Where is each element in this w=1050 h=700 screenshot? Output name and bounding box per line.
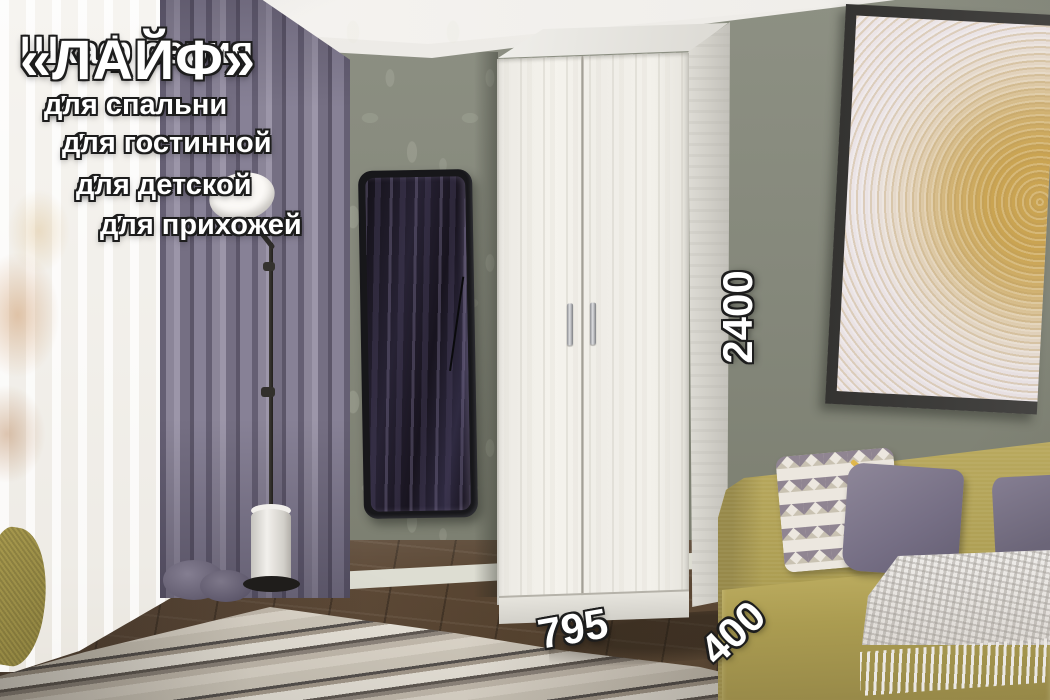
floor-lamp-pole [269,243,273,517]
floor-lamp-joint [261,387,275,397]
wall-art-canvas [837,16,1050,402]
wardrobe-handle-left [567,303,573,345]
floor-lamp-base-plate [243,576,300,592]
wardrobe-wall-shadow [474,52,498,597]
feature-label: для гостинной [62,129,272,158]
wardrobe-handle-right [590,303,596,345]
feature-label: для прихожей [100,211,302,240]
feature-label: для спальни [44,91,227,120]
mirror-cord-reflection [449,277,464,371]
floor-lamp-joint [263,262,275,271]
mirror-glass [365,176,471,512]
product-photo-scene: Шкаф серия «ЛАЙФ» ✔ для спальни ✔ для го… [0,0,1050,700]
dimension-height-label: 2400 [717,257,759,377]
floor-lamp-base [251,509,291,585]
wardrobe-doors [497,52,689,605]
product-series-name: «ЛАЙФ» [20,32,256,88]
feature-label: для детской [76,171,252,200]
wall-mirror [358,169,478,519]
wall-art-frame [825,4,1050,415]
wardrobe-door-gap [581,56,584,602]
